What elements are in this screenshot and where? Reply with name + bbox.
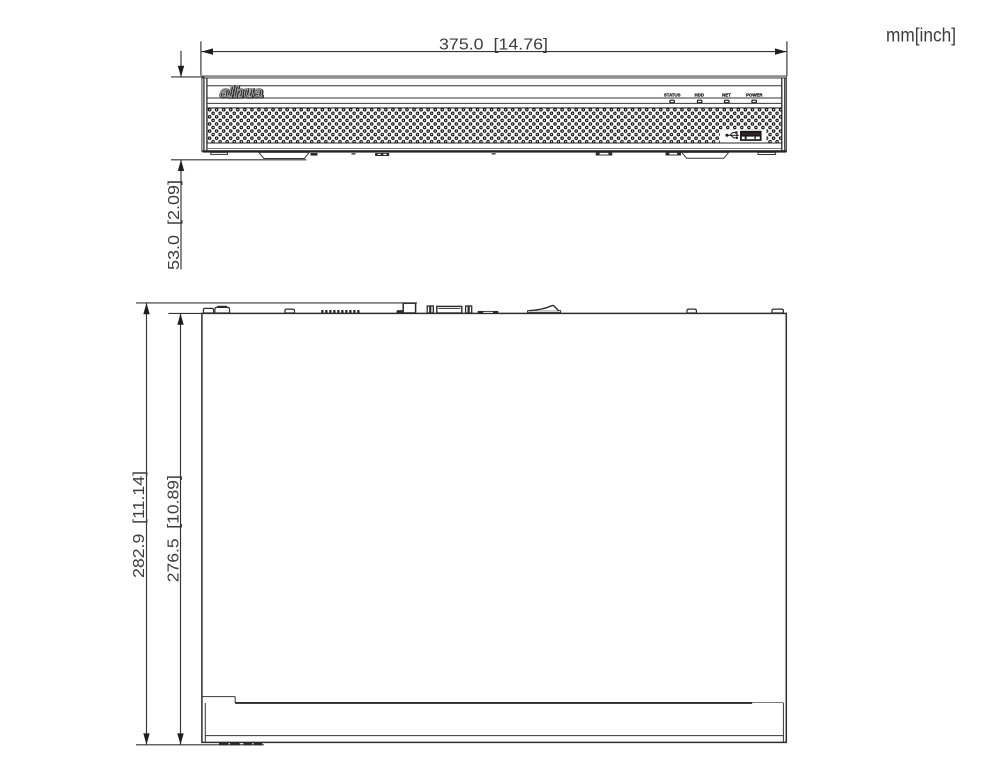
- svg-text:375.0 [14.76]: 375.0 [14.76]: [439, 37, 548, 54]
- svg-text:53.0 [2.09]: 53.0 [2.09]: [166, 180, 183, 270]
- svg-text:NET: NET: [722, 93, 731, 98]
- svg-text:mm[inch]: mm[inch]: [886, 26, 956, 47]
- svg-text:POWER: POWER: [746, 93, 763, 98]
- svg-text:HDD: HDD: [695, 93, 704, 98]
- svg-text:282.9 [11.14]: 282.9 [11.14]: [131, 471, 148, 578]
- svg-text:alhua: alhua: [220, 85, 263, 101]
- svg-text:276.5 [10.89]: 276.5 [10.89]: [166, 475, 183, 582]
- svg-text:STATUS: STATUS: [664, 93, 681, 98]
